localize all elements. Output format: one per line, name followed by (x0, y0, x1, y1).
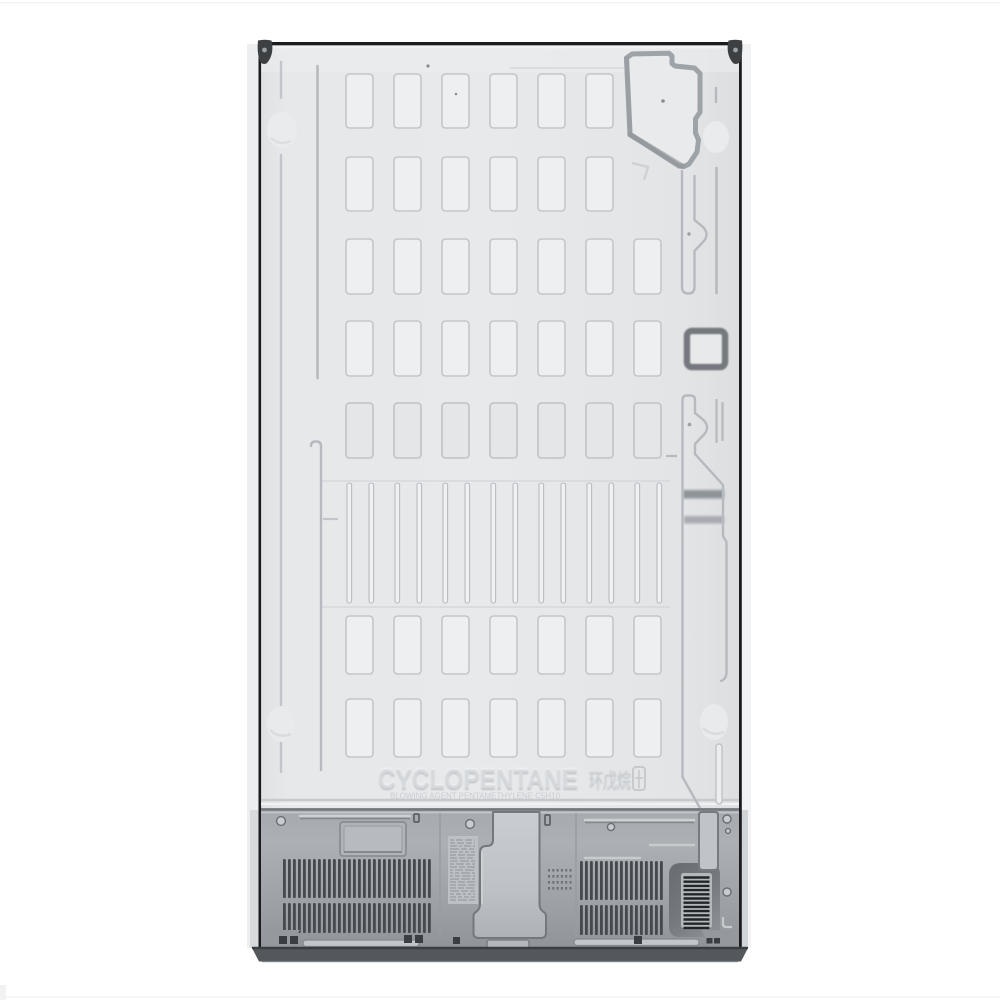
svg-text:CYCLOPENTANE: CYCLOPENTANE (378, 764, 578, 795)
svg-text:环戊烷: 环戊烷 (589, 769, 631, 793)
svg-text:BLOWING AGENT PENTAMETHYLENE C: BLOWING AGENT PENTAMETHYLENE C5H10 (390, 792, 561, 801)
